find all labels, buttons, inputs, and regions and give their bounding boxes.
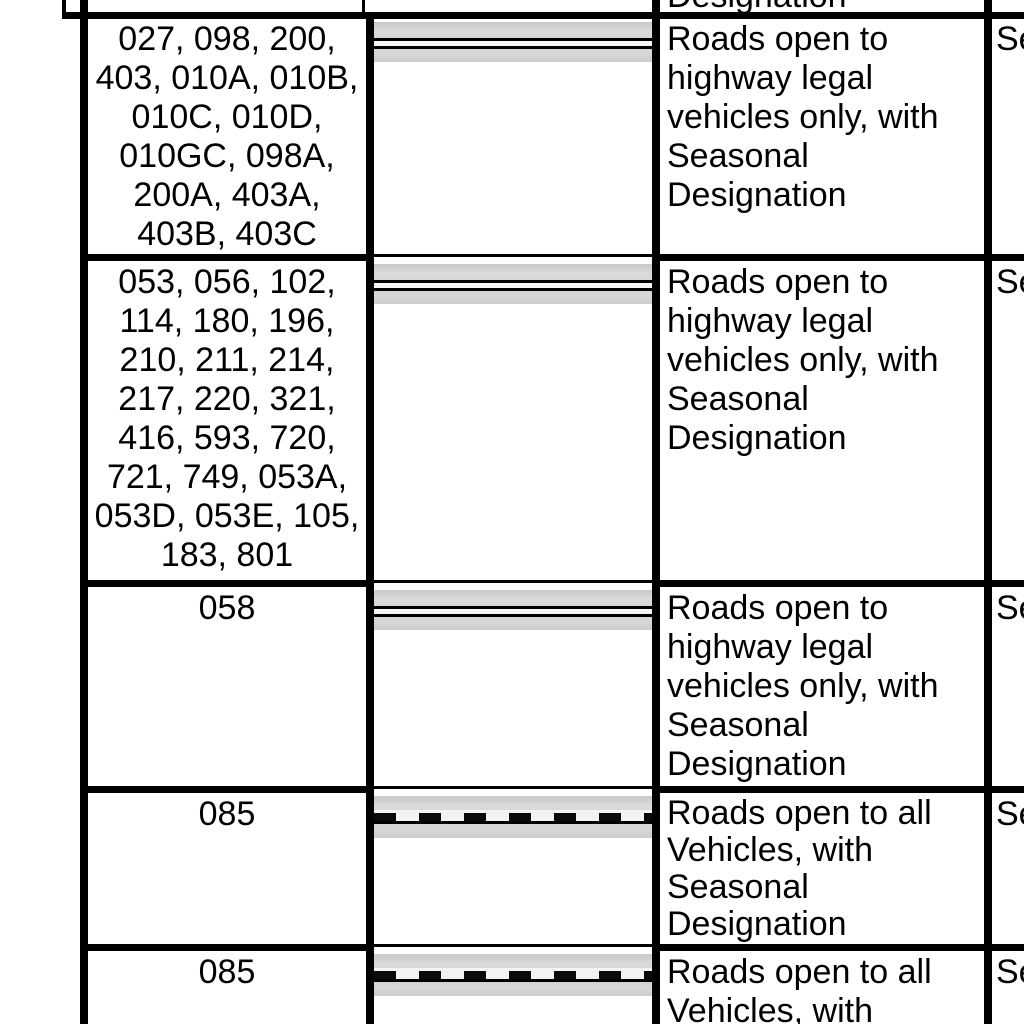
dashed-line-strip — [374, 810, 652, 824]
text-line: Designation — [667, 176, 984, 215]
road-symbol-cell — [374, 944, 652, 1006]
road-symbol-cell — [374, 19, 652, 69]
description-cell: Roads open to allVehicles, withSeasonalD… — [660, 795, 984, 943]
partial-row-description-cell: Designation — [660, 0, 984, 12]
road-symbol-cell — [374, 580, 652, 638]
partial-row-symbol-frame-line — [362, 0, 365, 12]
description-cell: Roads open tohighway legalvehicles only,… — [660, 20, 984, 215]
roads-cell: 085 — [88, 953, 366, 992]
partial-row-left-line — [62, 0, 66, 12]
double-line-core — [374, 280, 652, 291]
description-cell: Roads open tohighway legalvehicles only,… — [660, 589, 984, 784]
table-vertical-border — [366, 12, 374, 1024]
text-line: vehicles only, with — [667, 98, 984, 137]
text-line: Seasonal — [667, 869, 984, 906]
text-line: vehicles only, with — [667, 667, 984, 706]
dash-pattern — [374, 813, 652, 821]
dash-pattern — [374, 971, 652, 979]
text-line: highway legal — [667, 302, 984, 341]
season-column-cell: Se — [996, 20, 1024, 59]
roads-cell: 053, 056, 102,114, 180, 196,210, 211, 21… — [88, 263, 366, 575]
text-line: 114, 180, 196, — [88, 302, 366, 341]
text-line: 085 — [88, 953, 366, 992]
road-symbol-cell — [374, 254, 652, 312]
road-symbol-dashed-line — [374, 796, 652, 838]
roads-cell: 085 — [88, 795, 366, 834]
season-column-cell: Se — [996, 589, 1024, 628]
text-line: Roads open to — [667, 589, 984, 628]
text-line: 721, 749, 053A, — [88, 458, 366, 497]
text-line: Roads open to — [667, 20, 984, 59]
table-vertical-border — [652, 0, 660, 1024]
clipped-description-text: Designation — [667, 0, 984, 12]
road-symbol-double-line — [374, 22, 652, 62]
description-cell: Roads open to allVehicles, with — [660, 953, 984, 1024]
text-line: Designation — [667, 419, 984, 458]
text-line: 210, 211, 214, — [88, 341, 366, 380]
season-column-cell: Se — [996, 263, 1024, 302]
description-cell: Roads open tohighway legalvehicles only,… — [660, 263, 984, 458]
text-line: Roads open to all — [667, 795, 984, 832]
dashed-line-strip — [374, 968, 652, 982]
road-symbol-double-line — [374, 264, 652, 304]
roads-cell: 058 — [88, 589, 366, 628]
text-line: 403, 010A, 010B, — [88, 59, 366, 98]
text-line: 058 — [88, 589, 366, 628]
table-vertical-border — [984, 0, 992, 1024]
road-designation-table: Designation 027, 098, 200,403, 010A, 010… — [0, 0, 1024, 1024]
road-symbol-cell — [374, 786, 652, 848]
text-line: 027, 098, 200, — [88, 20, 366, 59]
text-line: 053, 056, 102, — [88, 263, 366, 302]
text-line: 053D, 053E, 105, — [88, 497, 366, 536]
text-line: Designation — [667, 906, 984, 943]
text-line: Vehicles, with — [667, 992, 984, 1024]
text-line: Vehicles, with — [667, 832, 984, 869]
text-line: Seasonal — [667, 137, 984, 176]
table-horizontal-border — [62, 12, 1024, 19]
roads-cell: 027, 098, 200,403, 010A, 010B,010C, 010D… — [88, 20, 366, 254]
text-line: 010C, 010D, — [88, 98, 366, 137]
road-symbol-double-line — [374, 590, 652, 630]
text-line: 085 — [88, 795, 366, 834]
text-line: 416, 593, 720, — [88, 419, 366, 458]
road-symbol-dashed-line — [374, 954, 652, 996]
double-line-core — [374, 606, 652, 617]
text-line: Roads open to all — [667, 953, 984, 992]
text-line: 010GC, 098A, — [88, 137, 366, 176]
text-line: highway legal — [667, 59, 984, 98]
text-line: Roads open to — [667, 263, 984, 302]
table-left-border — [80, 0, 88, 1024]
text-line: 200A, 403A, — [88, 176, 366, 215]
text-line: 403B, 403C — [88, 215, 366, 254]
season-column-cell: Se — [996, 795, 1024, 834]
text-line: Designation — [667, 745, 984, 784]
text-line: 183, 801 — [88, 536, 366, 575]
text-line: highway legal — [667, 628, 984, 667]
season-column-cell: Se — [996, 953, 1024, 992]
text-line: 217, 220, 321, — [88, 380, 366, 419]
text-line: Seasonal — [667, 706, 984, 745]
text-line: Seasonal — [667, 380, 984, 419]
double-line-core — [374, 38, 652, 49]
text-line: vehicles only, with — [667, 341, 984, 380]
